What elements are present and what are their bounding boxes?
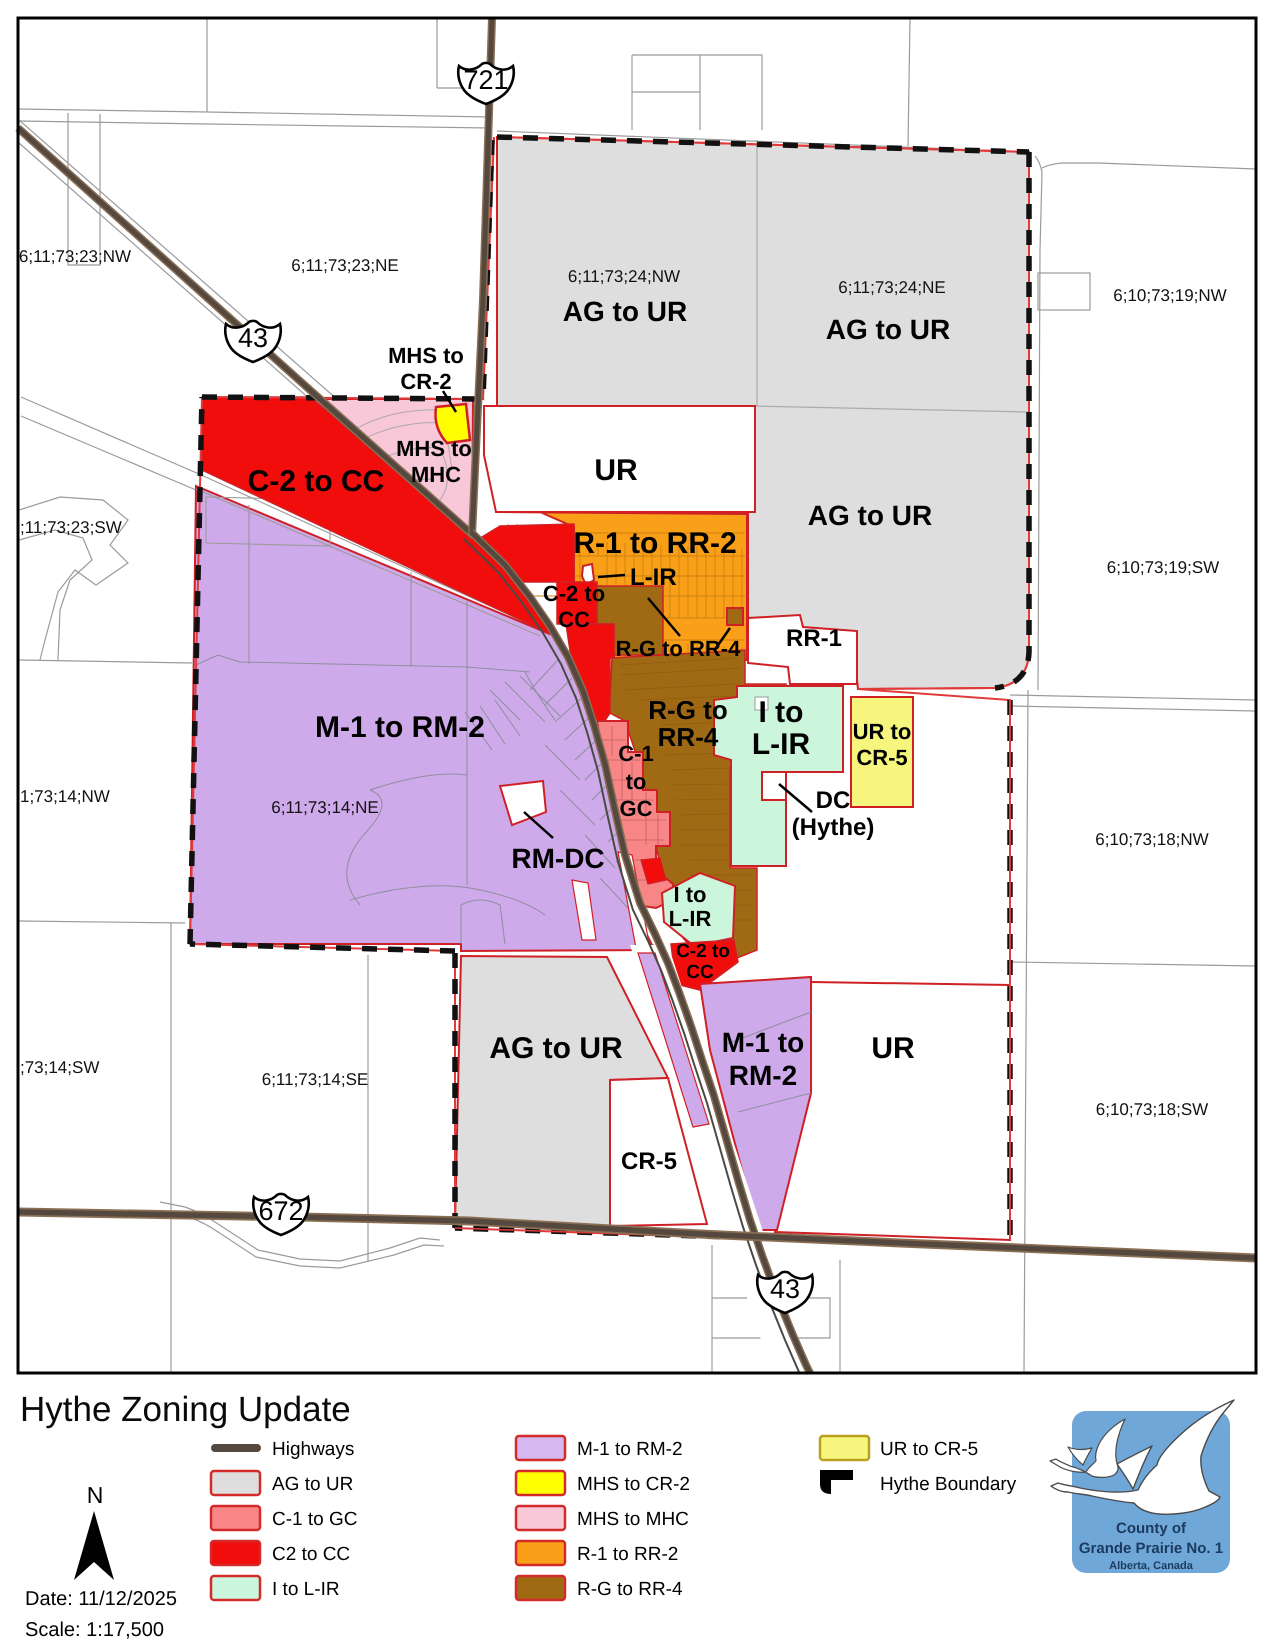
svg-text:AG to UR: AG to UR [489, 1032, 623, 1065]
svg-text:Alberta, Canada: Alberta, Canada [1109, 1560, 1194, 1572]
svg-text:RR-1: RR-1 [786, 625, 842, 652]
svg-text:6;10;73;18;SW: 6;10;73;18;SW [1096, 1100, 1208, 1119]
svg-text:UR: UR [871, 1032, 915, 1065]
svg-text:AG to UR: AG to UR [272, 1474, 353, 1495]
svg-text:6;11;73;14;NE: 6;11;73;14;NE [271, 798, 378, 817]
svg-text:GC: GC [620, 796, 653, 821]
svg-text:RM-2: RM-2 [729, 1060, 797, 1091]
svg-text:AG to UR: AG to UR [563, 296, 687, 327]
svg-text:UR to CR-5: UR to CR-5 [880, 1439, 978, 1460]
svg-text:1;73;14;NW: 1;73;14;NW [20, 787, 110, 806]
svg-text:6;10;73;19;NW: 6;10;73;19;NW [1113, 286, 1226, 305]
svg-text:I to: I to [674, 882, 707, 907]
svg-text:6;10;73;18;NW: 6;10;73;18;NW [1095, 830, 1208, 849]
svg-text:;73;14;SW: ;73;14;SW [20, 1058, 99, 1077]
svg-text:R-G to: R-G to [648, 695, 727, 725]
svg-text:AG to UR: AG to UR [808, 500, 932, 531]
svg-text:43: 43 [770, 1274, 800, 1304]
svg-text:R-G to RR-4: R-G to RR-4 [577, 1579, 683, 1600]
svg-text:MHS to MHC: MHS to MHC [577, 1509, 689, 1530]
svg-text:43: 43 [238, 323, 268, 353]
svg-text:L-IR: L-IR [630, 564, 677, 591]
svg-text:R-1 to RR-2: R-1 to RR-2 [577, 1544, 678, 1565]
svg-text:C-1 to GC: C-1 to GC [272, 1509, 358, 1530]
svg-text:Grande Prairie No. 1: Grande Prairie No. 1 [1079, 1540, 1223, 1557]
svg-text:6;11;73;14;SE: 6;11;73;14;SE [262, 1070, 369, 1089]
svg-text:6;11;73;23;NE: 6;11;73;23;NE [291, 256, 398, 275]
svg-text:I to: I to [759, 696, 804, 729]
svg-text:C-2 to: C-2 to [543, 581, 605, 606]
svg-text:MHC: MHC [411, 462, 461, 487]
svg-text:(Hythe): (Hythe) [792, 814, 875, 841]
svg-text:MHS to: MHS to [396, 436, 472, 461]
svg-text:RR-4: RR-4 [658, 722, 719, 752]
svg-text:Hythe Zoning Update: Hythe Zoning Update [20, 1390, 351, 1429]
svg-text:CC: CC [686, 962, 714, 983]
svg-text:CC: CC [558, 607, 590, 632]
svg-text:L-IR: L-IR [669, 906, 712, 931]
svg-text:C-2 to: C-2 to [676, 941, 730, 962]
svg-text:MHS to: MHS to [388, 343, 464, 368]
svg-text:County of: County of [1116, 1520, 1187, 1537]
svg-text:R-1 to RR-2: R-1 to RR-2 [573, 527, 736, 560]
svg-text:C2 to CC: C2 to CC [272, 1544, 350, 1565]
svg-text:CR-5: CR-5 [856, 745, 907, 770]
svg-text:6;11;73;23;NW: 6;11;73;23;NW [19, 247, 131, 266]
svg-text:721: 721 [463, 65, 508, 95]
svg-text:CR-5: CR-5 [621, 1148, 677, 1175]
svg-text:AG to UR: AG to UR [826, 314, 950, 345]
svg-text:I to L-IR: I to L-IR [272, 1579, 340, 1600]
svg-text:C-2 to CC: C-2 to CC [248, 465, 385, 498]
svg-text:MHS to CR-2: MHS to CR-2 [577, 1474, 690, 1495]
svg-text:M-1 to RM-2: M-1 to RM-2 [315, 711, 485, 744]
svg-text:672: 672 [258, 1196, 303, 1226]
svg-text:N: N [87, 1482, 104, 1508]
svg-text:UR: UR [594, 454, 638, 487]
svg-text:M-1 to RM-2: M-1 to RM-2 [577, 1439, 683, 1460]
svg-text:RM-DC: RM-DC [511, 843, 604, 874]
svg-text:6;10;73;19;SW: 6;10;73;19;SW [1107, 558, 1219, 577]
svg-text:6;11;73;24;NE: 6;11;73;24;NE [838, 278, 945, 297]
svg-text:M-1 to: M-1 to [722, 1027, 804, 1058]
svg-text:C-1: C-1 [618, 741, 653, 766]
svg-text:to: to [626, 769, 647, 794]
svg-text:Highways: Highways [272, 1439, 354, 1460]
svg-text:DC: DC [816, 787, 851, 814]
svg-text:R-G to RR-4: R-G to RR-4 [616, 636, 741, 661]
svg-text:;11;73;23;SW: ;11;73;23;SW [20, 518, 122, 537]
svg-text:Scale: 1:17,500: Scale: 1:17,500 [25, 1619, 164, 1641]
svg-text:Date: 11/12/2025: Date: 11/12/2025 [25, 1588, 177, 1610]
svg-text:Hythe Boundary: Hythe Boundary [880, 1474, 1017, 1495]
svg-text:L-IR: L-IR [752, 728, 811, 761]
svg-text:CR-2: CR-2 [400, 369, 451, 394]
svg-text:6;11;73;24;NW: 6;11;73;24;NW [568, 267, 680, 286]
svg-text:UR to: UR to [853, 719, 912, 744]
